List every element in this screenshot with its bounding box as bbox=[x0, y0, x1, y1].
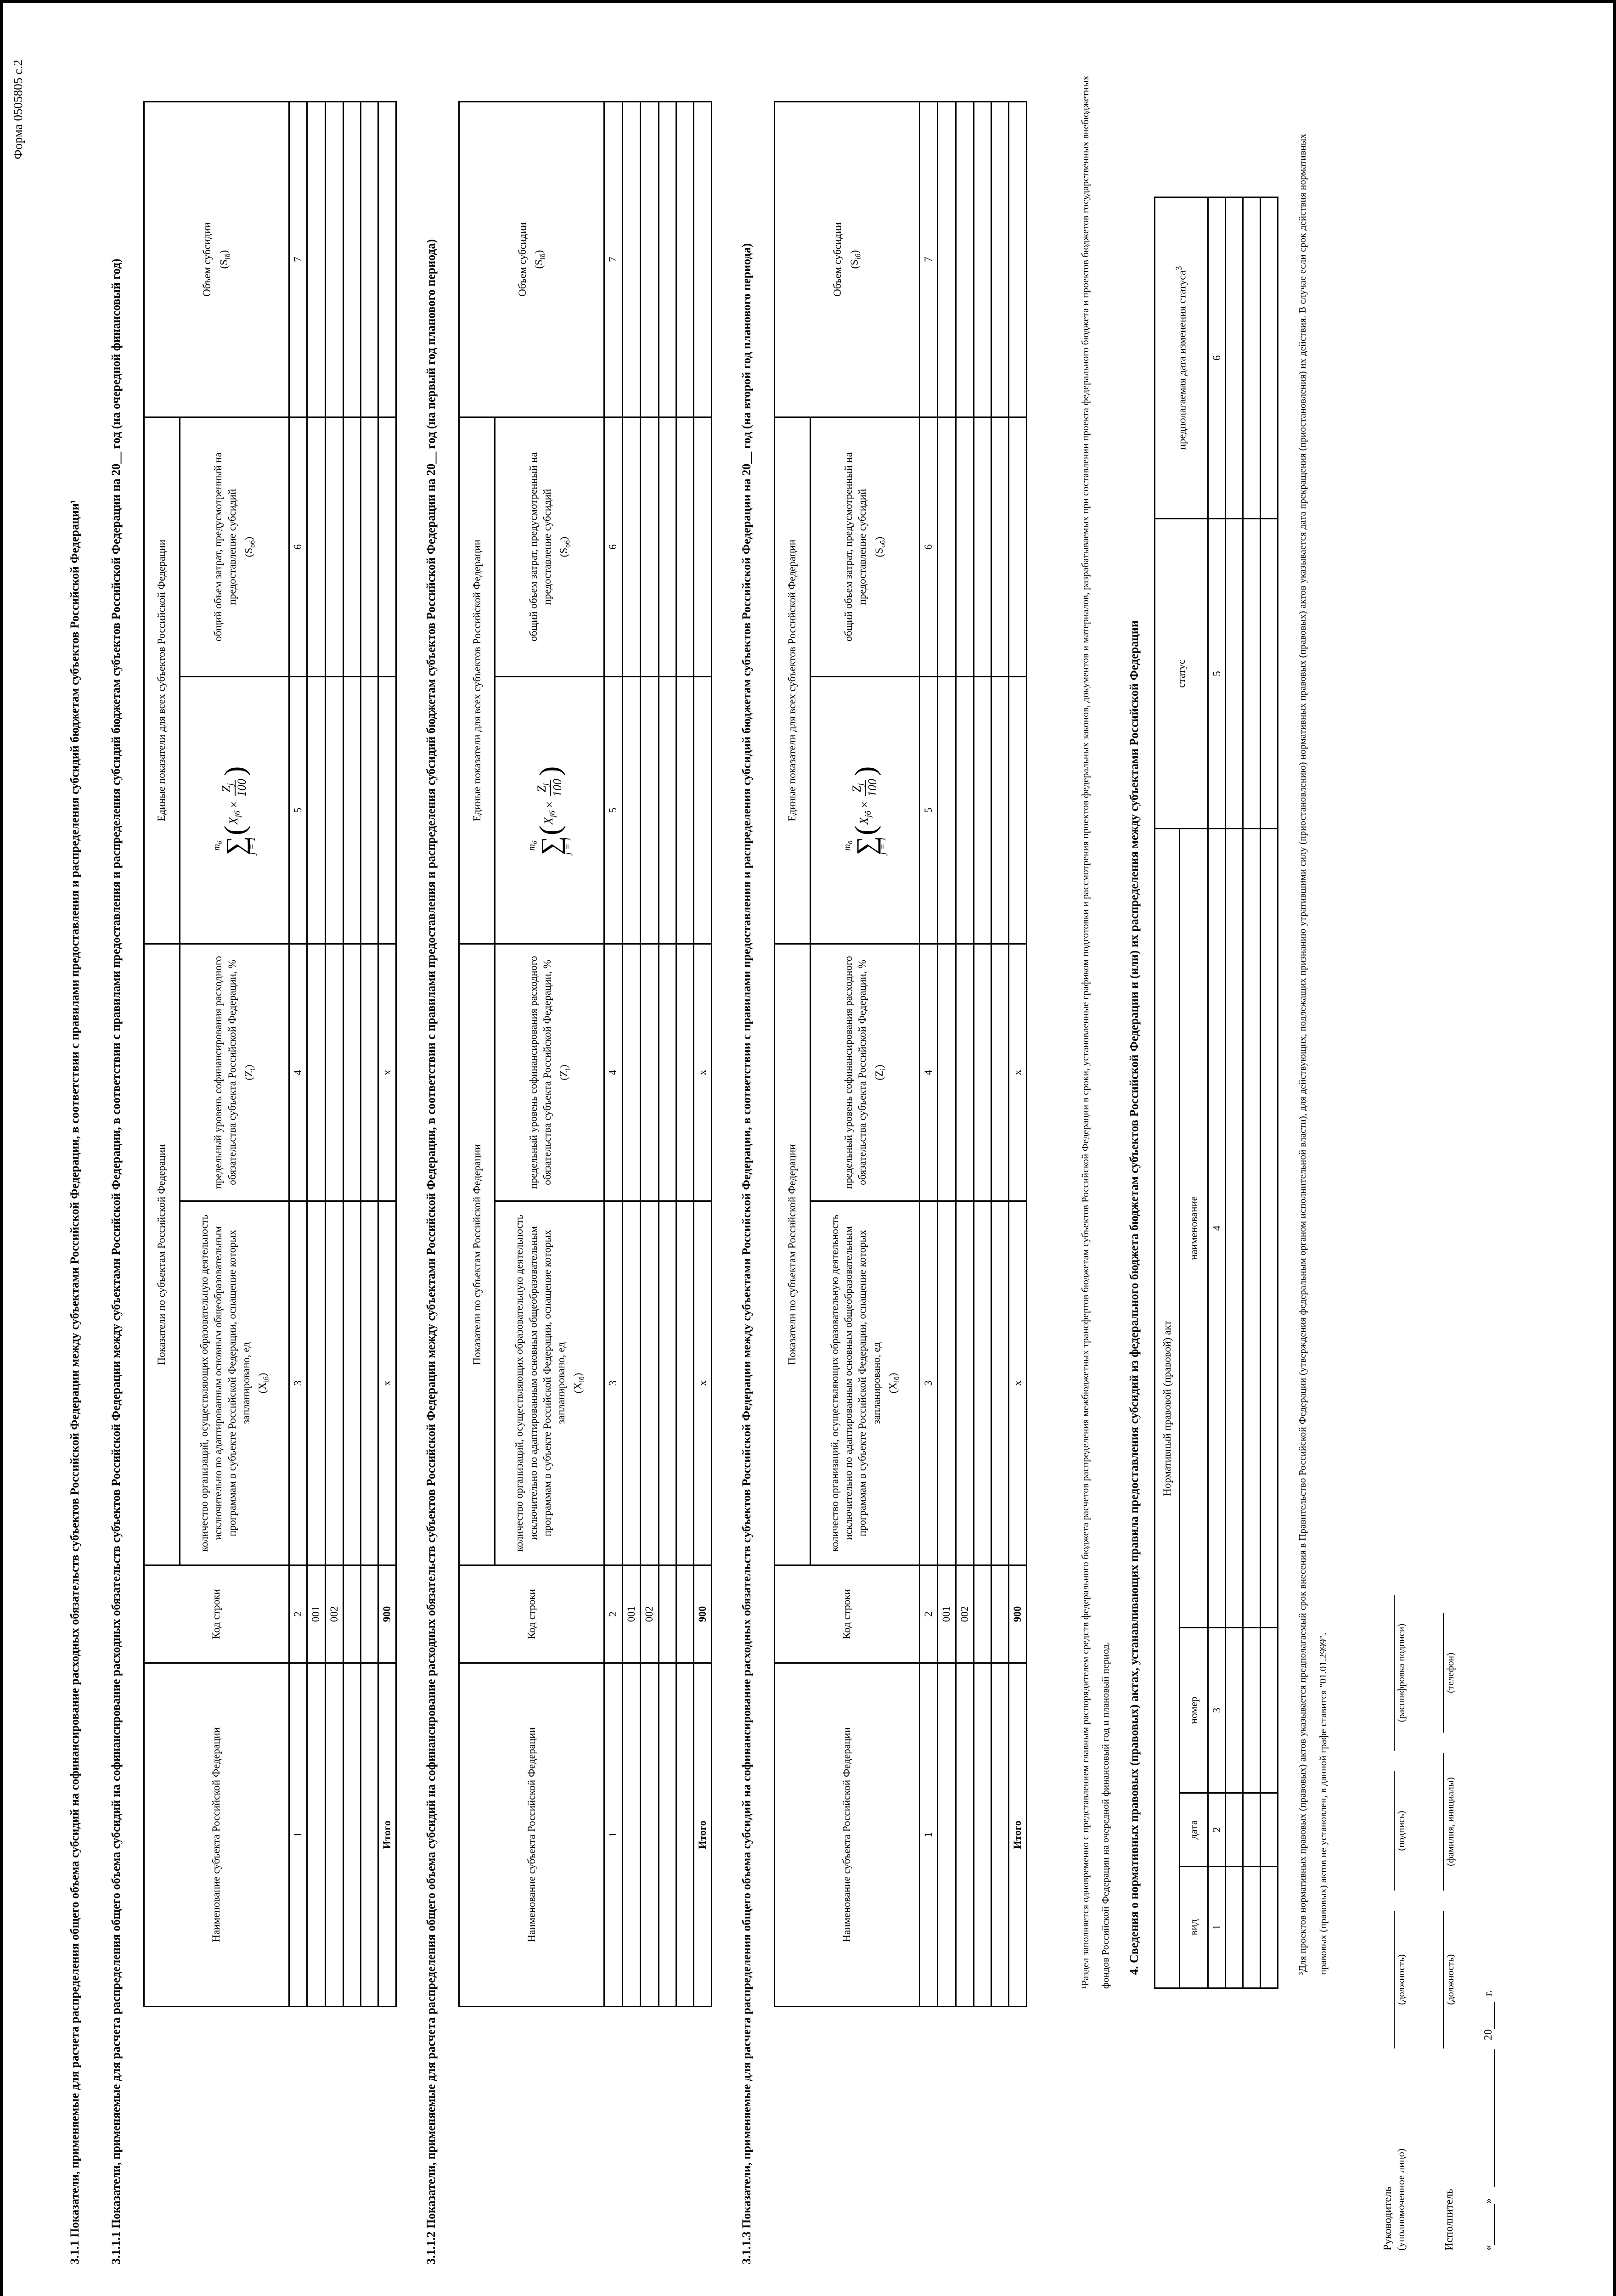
group-header-subject-indicators: Показатели по субъектам Российской Федер… bbox=[774, 944, 810, 1565]
total-label: Итого bbox=[1008, 1663, 1026, 2007]
table-row-001: 001 bbox=[307, 102, 325, 2007]
total-costs-symbol: (Sоб) bbox=[873, 422, 888, 671]
col-header-cofinancing-level: предельный уровень софинансирования расх… bbox=[180, 944, 289, 1201]
total-x-mark: х bbox=[378, 944, 396, 1201]
section-4-title: 4. Сведения о нормативных правовых (прав… bbox=[1127, 28, 1141, 1975]
legal-act-row-empty bbox=[1243, 197, 1261, 1988]
line-code-cell: 002 bbox=[956, 1565, 974, 1663]
leader-sign-slot: (подпись) bbox=[1382, 1771, 1407, 1891]
signature-line bbox=[1431, 1753, 1444, 1891]
col-header-subsidy-volume: Объем субсидии (Siб) bbox=[144, 102, 289, 417]
subject-name-cell bbox=[325, 1663, 343, 2007]
signature-line bbox=[1382, 1911, 1395, 2048]
table-row-001: 001 bbox=[938, 102, 956, 2007]
signature-line bbox=[1382, 1771, 1395, 1891]
org-count-symbol: (Хiб) bbox=[886, 1206, 902, 1560]
cofinancing-level-symbol: (Zi) bbox=[557, 949, 573, 1196]
group-header-legal-act: Нормативный правовой (правовой) акт bbox=[1155, 828, 1180, 1988]
col-header-act-number: номер bbox=[1180, 1628, 1208, 1793]
col-header-subject: Наименование субъекта Российской Федерац… bbox=[144, 1663, 289, 2007]
form-number-label: Форма 0505805 с.2 bbox=[11, 60, 25, 159]
footnote-1: ¹Раздел заполняется одновременно с предс… bbox=[1075, 69, 1115, 1989]
subject-name-cell bbox=[956, 1663, 974, 2007]
col-header-act-name: наименование bbox=[1180, 828, 1208, 1627]
table-row-002: 002 bbox=[325, 102, 343, 2007]
column-numbers-row: 123 456 7 bbox=[604, 102, 622, 2007]
table-row-empty bbox=[343, 102, 361, 2007]
total-x-mark: х bbox=[693, 944, 711, 1201]
signature-line bbox=[1431, 1613, 1444, 1733]
col-header-total-costs: общий объем затрат, предусмотренный на п… bbox=[495, 417, 604, 677]
subject-name-cell bbox=[641, 1663, 659, 2007]
subject-name-cell bbox=[622, 1663, 640, 2007]
sum-formula: mб ∑ j = 1 ( Xjб × Zj 100 ) bbox=[527, 682, 572, 939]
col-header-cofinancing-level: предельный уровень софинансирования расх… bbox=[495, 944, 604, 1201]
sum-formula: mб ∑ j = 1 ( Xjб × Zj 100 ) bbox=[843, 682, 887, 939]
total-label: Итого bbox=[693, 1663, 711, 2007]
subsection-3-1-1-2: 3.1.1.2 Показатели, применяемые для расч… bbox=[424, 0, 712, 2296]
table-row-001: 001 bbox=[622, 102, 640, 2007]
col-header-formula: mб ∑ j = 1 ( Xjб × Zj 100 ) bbox=[180, 677, 289, 944]
formula-x-term: Xjб bbox=[541, 811, 558, 825]
org-count-symbol: (Хiб) bbox=[256, 1206, 271, 1560]
executor-name-slot: (фамилия, инициалы) bbox=[1431, 1753, 1456, 1891]
table-row-empty bbox=[974, 102, 991, 2007]
cofinancing-level-symbol: (Zi) bbox=[873, 949, 888, 1196]
col-header-total-costs: общий объем затрат, предусмотренный на п… bbox=[180, 417, 289, 677]
total-costs-symbol: (Sоб) bbox=[557, 422, 573, 671]
table-row-002: 002 bbox=[641, 102, 659, 2007]
leader-signature-row: Руководитель (уполномоченное лицо) (долж… bbox=[1381, 1447, 1408, 2251]
table-row-total: Итого 900 х х bbox=[693, 102, 711, 2007]
col-header-act-date: дата bbox=[1180, 1793, 1208, 1867]
executor-position-slot: (должность) bbox=[1431, 1911, 1456, 2048]
col-header-line-code: Код строки bbox=[459, 1565, 604, 1663]
group-header-unified-indicators: Единые показатели для всех субъектов Рос… bbox=[774, 417, 810, 944]
total-x-mark: х bbox=[378, 1201, 396, 1565]
subsidy-volume-symbol: (Siб) bbox=[532, 107, 548, 412]
date-year-line bbox=[1482, 2002, 1495, 2029]
col-header-total-costs: общий объем затрат, предусмотренный на п… bbox=[810, 417, 919, 677]
col-header-line-code: Код строки bbox=[144, 1565, 289, 1663]
group-header-subject-indicators: Показатели по субъектам Российской Федер… bbox=[144, 944, 180, 1565]
group-header-unified-indicators: Единые показатели для всех субъектов Рос… bbox=[459, 417, 495, 944]
line-code-cell: 002 bbox=[641, 1565, 659, 1663]
total-costs-symbol: (Sоб) bbox=[242, 422, 258, 671]
table-row-002: 002 bbox=[956, 102, 974, 2007]
subsection-3-1-1-1: 3.1.1.1 Показатели, применяемые для расч… bbox=[109, 0, 397, 2296]
subsection-3-1-1-3: 3.1.1.3 Показатели, применяемые для расч… bbox=[740, 0, 1027, 2296]
col-header-status-change-date: предполагаемая дата изменения статуса3 bbox=[1155, 197, 1208, 518]
subsection-3-1-1-3-table-slot: Наименование субъекта Российской Федерац… bbox=[774, 0, 1027, 2296]
sum-formula: mб ∑ j = 1 ( Xjб × Zj 100 ) bbox=[212, 682, 257, 939]
subsidy-volume-symbol: (Siб) bbox=[217, 107, 233, 412]
subsidy-volume-symbol: (Siб) bbox=[848, 107, 863, 412]
sigma-symbol: ∑ bbox=[224, 836, 248, 855]
footnote-3: ³Для проектов нормативных правовых (прав… bbox=[1292, 92, 1333, 1975]
subsection-3-1-1-3-title: 3.1.1.3 Показатели, применяемые для расч… bbox=[740, 28, 754, 2264]
col-header-act-type: вид bbox=[1180, 1867, 1208, 1988]
signature-line bbox=[1382, 1595, 1395, 1751]
legal-acts-table: Нормативный правовой (правовой) акт стат… bbox=[1154, 197, 1278, 1989]
executor-signature-row: Исполнитель (должность) (фамилия, инициа… bbox=[1431, 1447, 1456, 2251]
subsidy-table: Наименование субъекта Российской Федерац… bbox=[458, 101, 712, 2007]
legal-act-row-empty bbox=[1261, 197, 1278, 1988]
signature-line bbox=[1431, 1911, 1444, 2048]
table-row-total: Итого 900 х х bbox=[1008, 102, 1026, 2007]
col-header-status: статус bbox=[1155, 518, 1208, 828]
column-numbers-row: 123 456 7 bbox=[289, 102, 307, 2007]
col-header-subsidy-volume: Объем субсидии (Siб) bbox=[459, 102, 604, 417]
col-header-formula: mб ∑ j = 1 ( Xjб × Zj 100 ) bbox=[810, 677, 919, 944]
col-header-cofinancing-level: предельный уровень софинансирования расх… bbox=[810, 944, 919, 1201]
col-header-subject: Наименование субъекта Российской Федерац… bbox=[459, 1663, 604, 2007]
total-x-mark: х bbox=[693, 1201, 711, 1565]
date-day-line bbox=[1482, 2204, 1495, 2245]
table-row-empty bbox=[676, 102, 693, 2007]
legal-act-row-empty bbox=[1226, 197, 1243, 1988]
table-row-empty bbox=[361, 102, 378, 2007]
subject-name-cell bbox=[938, 1663, 956, 2007]
sigma-symbol: ∑ bbox=[854, 836, 878, 855]
leader-position-slot: (должность) bbox=[1382, 1911, 1407, 2048]
leader-label: Руководитель (уполномоченное лицо) bbox=[1381, 2048, 1408, 2251]
subsidy-table: Наименование субъекта Российской Федерац… bbox=[143, 101, 397, 2007]
subsection-3-1-1-1-table-slot: Наименование субъекта Российской Федерац… bbox=[143, 0, 397, 2296]
total-code: 900 bbox=[693, 1565, 711, 1663]
landscape-sheet: Форма 0505805 с.2 3.1.1 Показатели, прим… bbox=[0, 0, 1616, 2296]
column-numbers-row: 123 456 7 bbox=[919, 102, 937, 2007]
col-header-line-code: Код строки bbox=[774, 1565, 919, 1663]
executor-label: Исполнитель bbox=[1442, 2048, 1456, 2251]
formula-fraction: Zj 100 bbox=[535, 779, 564, 797]
formula-fraction: Zj 100 bbox=[850, 779, 879, 797]
line-code-cell: 001 bbox=[938, 1565, 956, 1663]
line-code-cell: 001 bbox=[307, 1565, 325, 1663]
column-numbers-row: 123 456 bbox=[1208, 197, 1226, 1988]
line-code-cell: 002 bbox=[325, 1565, 343, 1663]
section-3-1-1-title: 3.1.1 Показатели, применяемые для расчет… bbox=[68, 28, 82, 2264]
cofinancing-level-symbol: (Zi) bbox=[242, 949, 258, 1196]
col-header-org-count: количество организаций, осуществляющих о… bbox=[810, 1201, 919, 1565]
org-count-symbol: (Хiб) bbox=[571, 1206, 587, 1560]
subsection-3-1-1-1-title: 3.1.1.1 Показатели, применяемые для расч… bbox=[109, 28, 123, 2264]
date-month-line bbox=[1482, 2049, 1495, 2187]
col-header-formula: mб ∑ j = 1 ( Xjб × Zj 100 ) bbox=[495, 677, 604, 944]
group-header-unified-indicators: Единые показатели для всех субъектов Рос… bbox=[144, 417, 180, 944]
col-header-subsidy-volume: Объем субсидии (Siб) bbox=[774, 102, 919, 417]
date-line: « » 20 г. bbox=[1482, 1447, 1495, 2251]
total-x-mark: х bbox=[1008, 944, 1026, 1201]
subsection-3-1-1-2-table-slot: Наименование субъекта Российской Федерац… bbox=[458, 0, 712, 2296]
group-header-subject-indicators: Показатели по субъектам Российской Федер… bbox=[459, 944, 495, 1565]
subsection-3-1-1-2-title: 3.1.1.2 Показатели, применяемые для расч… bbox=[424, 28, 438, 2264]
total-label: Итого bbox=[378, 1663, 396, 2007]
sigma-symbol: ∑ bbox=[539, 836, 563, 855]
formula-fraction: Zj 100 bbox=[220, 779, 249, 797]
subject-name-cell bbox=[307, 1663, 325, 2007]
total-code: 900 bbox=[378, 1565, 396, 1663]
leader-name-slot: (расшифровка подписи) bbox=[1382, 1595, 1407, 1751]
col-header-subject: Наименование субъекта Российской Федерац… bbox=[774, 1663, 919, 2007]
total-code: 900 bbox=[1008, 1565, 1026, 1663]
scanned-form-page: Форма 0505805 с.2 3.1.1 Показатели, прим… bbox=[0, 0, 1616, 2296]
formula-x-term: Xjб bbox=[856, 811, 873, 825]
formula-x-term: Xjб bbox=[226, 811, 243, 825]
col-header-org-count: количество организаций, осуществляющих о… bbox=[180, 1201, 289, 1565]
signature-block: Руководитель (уполномоченное лицо) (долж… bbox=[1381, 1447, 1495, 2251]
total-x-mark: х bbox=[1008, 1201, 1026, 1565]
table-row-empty bbox=[991, 102, 1008, 2007]
table-row-empty bbox=[659, 102, 676, 2007]
subsidy-table: Наименование субъекта Российской Федерац… bbox=[774, 101, 1027, 2007]
line-code-cell: 001 bbox=[622, 1565, 640, 1663]
col-header-org-count: количество организаций, осуществляющих о… bbox=[495, 1201, 604, 1565]
executor-phone-slot: (телефон) bbox=[1431, 1613, 1456, 1733]
table-row-total: Итого 900 х х bbox=[378, 102, 396, 2007]
